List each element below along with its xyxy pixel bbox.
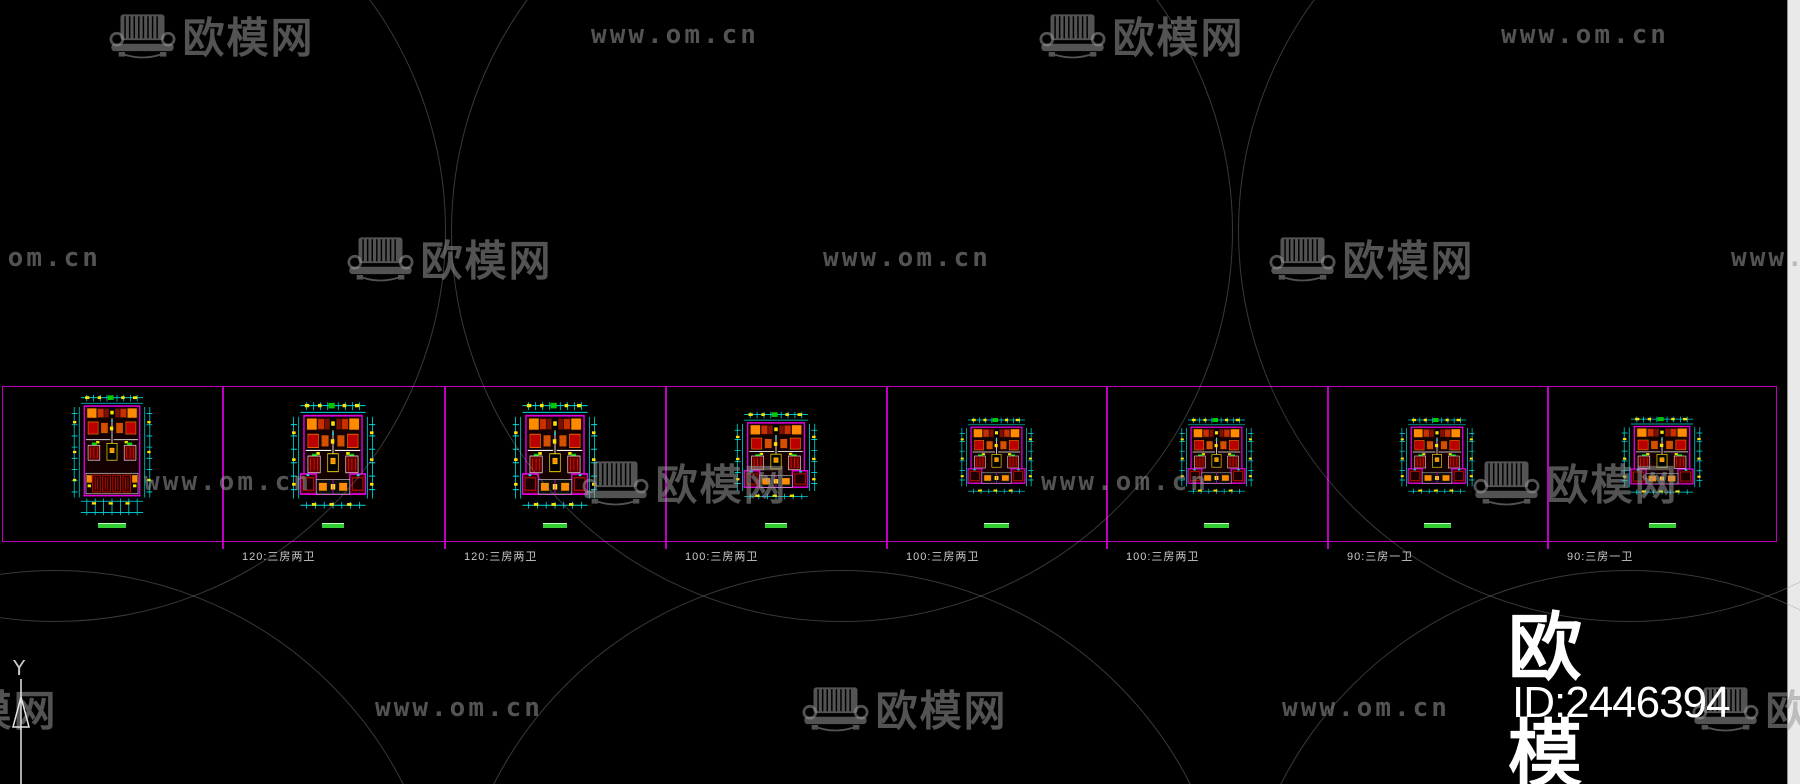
ucs-axis-icon: Y [0,645,44,784]
plan-scale-bar [543,523,567,528]
sheet-divider [222,386,224,549]
floor-plan-thumbnail[interactable] [958,416,1035,496]
plan-scale-bar [322,523,344,528]
plan-type-label: 120:三房两卫 [242,548,315,564]
sheet-divider [1547,386,1549,549]
sheet-divider [665,386,667,549]
floor-plan-thumbnail[interactable] [511,400,599,512]
floor-plan-thumbnail[interactable] [70,393,154,519]
plan-type-label: 120:三房两卫 [464,548,537,564]
site-id-text: ID:2446394 [1512,678,1730,728]
plan-scale-bar [1204,523,1229,528]
plan-scale-bar [765,523,787,528]
plan-type-label: 90:三房一卫 [1347,548,1413,564]
floor-plan-thumbnail[interactable] [289,400,377,512]
floor-plan-thumbnail[interactable] [1398,416,1476,496]
plan-type-label: 100:三房两卫 [906,548,979,564]
floor-plan-thumbnail[interactable] [1620,415,1704,497]
sheet-divider [1327,386,1329,549]
sheet-divider [886,386,888,549]
plan-scale-bar [1424,523,1451,528]
floor-plan-thumbnail[interactable] [1178,416,1255,496]
plan-scale-bar [98,523,126,528]
plan-scale-bar [984,523,1009,528]
plan-type-label: 90:三房一卫 [1567,548,1633,564]
plan-scale-bar [1649,523,1676,528]
ucs-y-label: Y [12,656,26,680]
floor-plan-thumbnail[interactable] [733,410,819,502]
plan-type-label: 100:三房两卫 [685,548,758,564]
sheet-row-border [2,386,1777,542]
sheet-divider [1106,386,1108,549]
cad-canvas[interactable]: 欧模网 www.om.cn 欧模网 www.om.cnwww.om.cn 欧模网… [0,0,1800,784]
plan-type-label: 100:三房两卫 [1126,548,1199,564]
sheet-divider [444,386,446,549]
